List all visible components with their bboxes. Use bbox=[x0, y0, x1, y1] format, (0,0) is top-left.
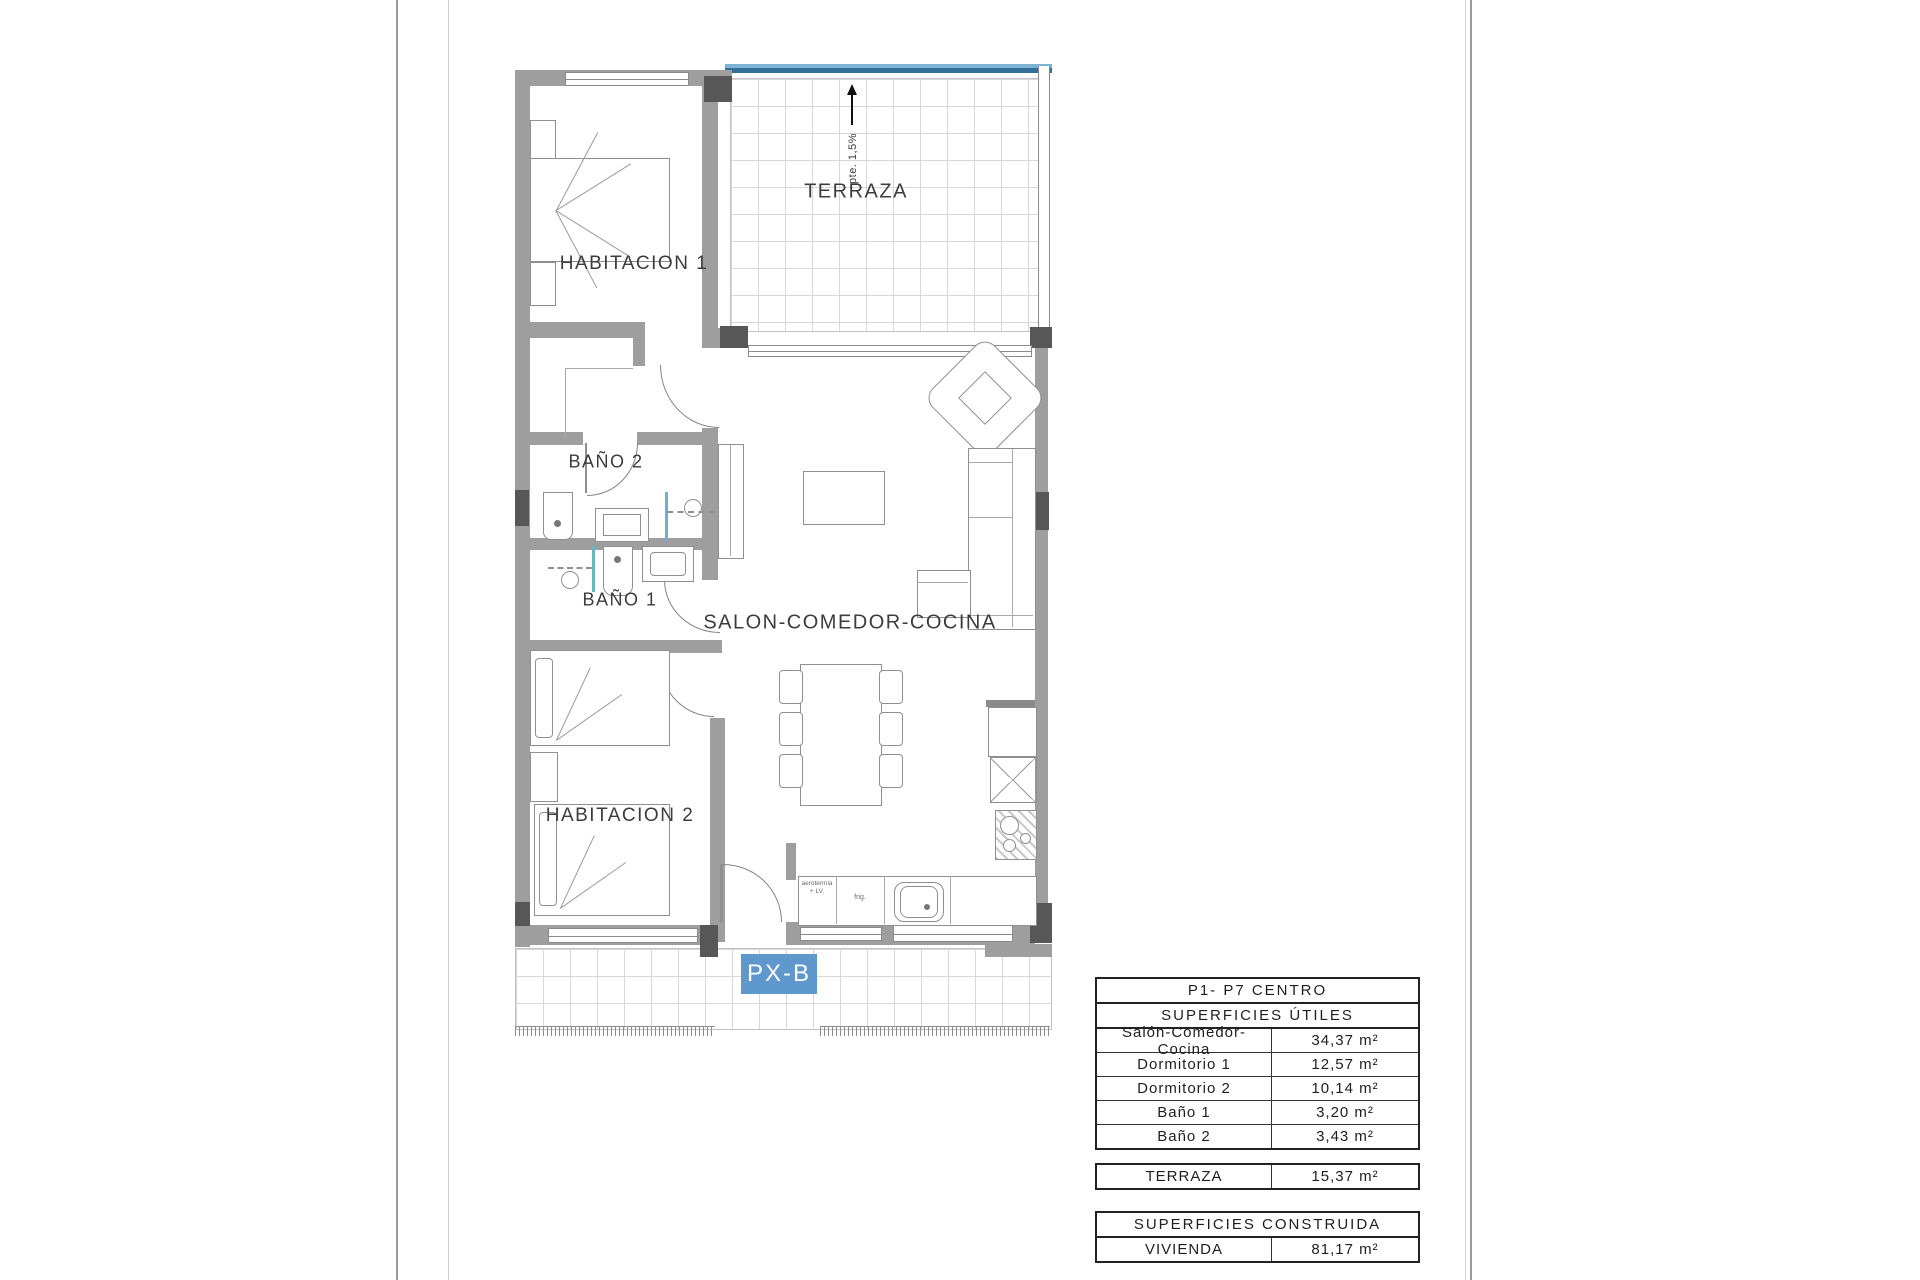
page-frame-line bbox=[1465, 0, 1466, 1280]
row-value: 3,43 m² bbox=[1272, 1128, 1418, 1145]
sink-basin bbox=[900, 886, 938, 918]
table-row: Baño 2 3,43 m² bbox=[1097, 1124, 1418, 1148]
row-label: Salón-Comedor-Cocina bbox=[1097, 1029, 1272, 1052]
sink-drain bbox=[924, 904, 930, 910]
table-row: Baño 1 3,20 m² bbox=[1097, 1100, 1418, 1124]
stove bbox=[995, 810, 1037, 860]
counter-divider bbox=[884, 876, 885, 924]
wall bbox=[530, 432, 583, 445]
dining-table bbox=[800, 664, 882, 806]
sofa-line bbox=[969, 517, 1013, 518]
appliance-note: aerotermia + LV. bbox=[799, 880, 835, 896]
wall bbox=[702, 428, 718, 580]
dining-chair bbox=[779, 670, 803, 704]
room-label-habitacion2: HABITACION 2 bbox=[546, 805, 695, 827]
page-frame-line bbox=[1470, 0, 1472, 1280]
unit-tag: PX-B bbox=[741, 954, 817, 994]
row-value: 15,37 m² bbox=[1272, 1168, 1418, 1185]
dining-chair bbox=[879, 712, 903, 746]
dining-chair bbox=[779, 754, 803, 788]
oven-column bbox=[990, 757, 1037, 803]
hatch-edge bbox=[515, 1026, 715, 1036]
shower-rail bbox=[667, 511, 715, 513]
slope-arrow-icon bbox=[847, 84, 857, 95]
row-value: 10,14 m² bbox=[1272, 1080, 1418, 1097]
row-label: Dormitorio 2 bbox=[1097, 1077, 1272, 1100]
toilet-flush-dot bbox=[554, 520, 561, 527]
tv-unit-line bbox=[730, 445, 731, 556]
page-frame-line bbox=[448, 0, 449, 1280]
burner bbox=[1000, 816, 1019, 835]
row-label: TERRAZA bbox=[1097, 1165, 1272, 1188]
wardrobe-line bbox=[565, 368, 566, 438]
tv-unit bbox=[718, 444, 744, 559]
coffee-table bbox=[803, 471, 885, 525]
room-label-salon: SALON-COMEDOR-COCINA bbox=[703, 612, 996, 635]
window bbox=[800, 927, 882, 941]
dining-chair bbox=[779, 712, 803, 746]
table-row: Salón-Comedor-Cocina 34,37 m² bbox=[1097, 1027, 1418, 1052]
slope-label-text: pte. 1,5% bbox=[847, 133, 859, 184]
table-row: TERRAZA 15,37 m² bbox=[1097, 1165, 1418, 1188]
built-table-title-text: SUPERFICIES CONSTRUIDA bbox=[1134, 1216, 1381, 1233]
room-label-bano1: BAÑO 1 bbox=[582, 590, 657, 611]
wall bbox=[985, 944, 1052, 957]
vanity-basin bbox=[650, 552, 686, 576]
built-table: SUPERFICIES CONSTRUIDA VIVIENDA 81,17 m² bbox=[1095, 1211, 1420, 1263]
wall bbox=[702, 84, 718, 330]
entry-door-arc bbox=[723, 864, 782, 922]
wall bbox=[786, 843, 796, 880]
wardrobe-line bbox=[565, 368, 633, 369]
burner bbox=[1020, 833, 1031, 844]
areas-table-title: P1- P7 CENTRO bbox=[1097, 979, 1418, 1002]
shower-head bbox=[561, 571, 579, 589]
dining-chair bbox=[879, 670, 903, 704]
shower-head bbox=[684, 499, 702, 517]
table-row: Dormitorio 2 10,14 m² bbox=[1097, 1076, 1418, 1100]
wall bbox=[515, 322, 645, 338]
room-label-bano2: BAÑO 2 bbox=[568, 452, 643, 473]
wall bbox=[633, 338, 645, 366]
shower-glass bbox=[665, 492, 668, 542]
window bbox=[893, 925, 1013, 942]
counter-divider bbox=[950, 876, 951, 924]
row-value: 81,17 m² bbox=[1272, 1241, 1418, 1258]
sofa-line bbox=[918, 582, 968, 583]
row-label: Dormitorio 1 bbox=[1097, 1053, 1272, 1076]
terrace-glass-side bbox=[1038, 66, 1050, 332]
column bbox=[704, 76, 732, 102]
row-label: Baño 1 bbox=[1097, 1101, 1272, 1124]
areas-table-title-text: P1- P7 CENTRO bbox=[1188, 982, 1327, 999]
window bbox=[548, 928, 698, 943]
built-table-title: SUPERFICIES CONSTRUIDA bbox=[1097, 1213, 1418, 1236]
shower-glass bbox=[592, 546, 595, 592]
burner bbox=[1003, 839, 1016, 852]
nightstand bbox=[530, 262, 556, 306]
column bbox=[1030, 327, 1052, 348]
terrace-table: TERRAZA 15,37 m² bbox=[1095, 1163, 1420, 1190]
row-value: 3,20 m² bbox=[1272, 1104, 1418, 1121]
nightstand bbox=[530, 120, 556, 162]
page-frame-line bbox=[396, 0, 398, 1280]
nightstand bbox=[530, 752, 558, 802]
towel-rail bbox=[548, 567, 592, 569]
column bbox=[700, 925, 718, 957]
slope-label: pte. 1,5% bbox=[845, 128, 861, 188]
slope-arrow-stem bbox=[851, 95, 853, 125]
pillow bbox=[535, 658, 553, 738]
counter-divider bbox=[836, 876, 837, 924]
row-label: VIVIENDA bbox=[1097, 1238, 1272, 1261]
hatch-edge bbox=[820, 1026, 1050, 1036]
table-row: VIVIENDA 81,17 m² bbox=[1097, 1236, 1418, 1261]
row-value: 12,57 m² bbox=[1272, 1056, 1418, 1073]
toilet bbox=[603, 546, 633, 596]
row-label: Baño 2 bbox=[1097, 1125, 1272, 1148]
door-arc bbox=[660, 365, 719, 428]
toilet-flush-dot bbox=[614, 556, 621, 563]
table-row: Dormitorio 1 12,57 m² bbox=[1097, 1052, 1418, 1076]
fridge-note: frig. bbox=[838, 894, 882, 903]
sofa bbox=[968, 448, 1036, 630]
column bbox=[515, 490, 529, 526]
sofa-line bbox=[969, 462, 1013, 463]
toilet bbox=[543, 492, 573, 540]
column bbox=[515, 902, 530, 926]
floor-plan-page: aerotermia + LV. frig. HABITACION 1 TERR… bbox=[0, 0, 1920, 1280]
room-label-habitacion1: HABITACION 1 bbox=[560, 253, 709, 275]
terrace-rail-dark bbox=[725, 68, 1052, 73]
dining-chair bbox=[879, 754, 903, 788]
column bbox=[720, 326, 748, 348]
areas-table-subtitle-text: SUPERFICIES ÚTILES bbox=[1161, 1007, 1354, 1024]
areas-table: P1- P7 CENTRO SUPERFICIES ÚTILES Salón-C… bbox=[1095, 977, 1420, 1150]
sofa-line bbox=[1012, 449, 1013, 627]
vanity-basin bbox=[603, 514, 641, 536]
fridge bbox=[988, 707, 1037, 757]
row-value: 34,37 m² bbox=[1272, 1032, 1418, 1049]
entry-door-leaf bbox=[720, 864, 723, 922]
window bbox=[565, 72, 689, 86]
fridge-top bbox=[986, 700, 1035, 707]
bed bbox=[530, 158, 670, 262]
terrace-tiles bbox=[730, 78, 1040, 332]
